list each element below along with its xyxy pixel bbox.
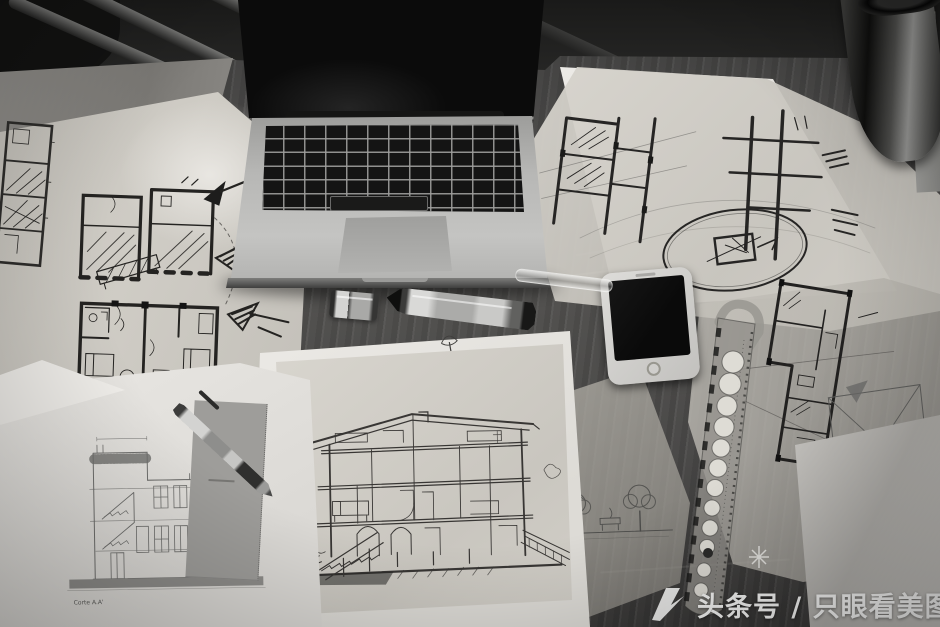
laptop-spacebar [330, 196, 428, 211]
laptop-trackpad [338, 216, 452, 273]
template-ruler [640, 288, 790, 627]
watermark-logo-icon [648, 586, 688, 622]
marker-cap [329, 290, 379, 321]
phone-speaker [635, 272, 655, 277]
architect-desk-photo: Corte A.A' [0, 0, 940, 627]
section-caption: Corte A.A' [74, 599, 104, 607]
watermark-text: 头条号 / 只眼看美图 [697, 585, 940, 624]
laptop-lid-notch [362, 278, 428, 282]
laptop-screen [236, 0, 548, 123]
watermark: 头条号 / 只眼看美图 [648, 584, 936, 624]
